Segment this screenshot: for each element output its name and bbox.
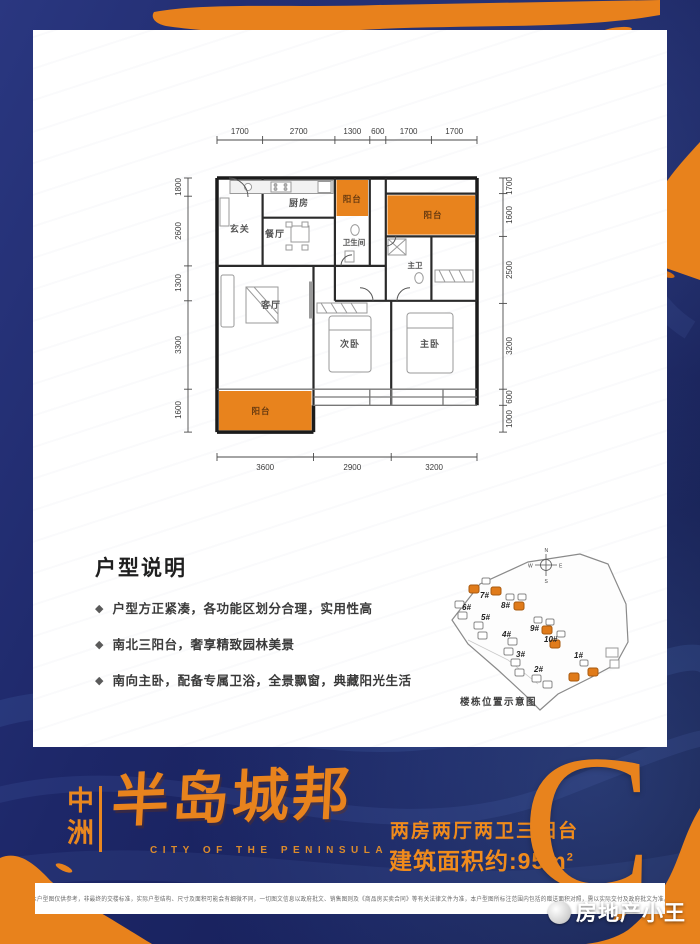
room-label-entry: 玄关 xyxy=(230,223,250,234)
unit-description: 户型说明 ◆ 户型方正紧凑，各功能区划分合理，实用性高 ◆ 南北三阳台，奢享精致… xyxy=(95,552,440,690)
floorplan-drawing: 1700 2700 1300 600 1700 1700 1800 2600 1… xyxy=(33,30,667,535)
dim-label: 1300 xyxy=(343,127,361,136)
watermark-avatar-icon xyxy=(548,901,571,924)
svg-text:N: N xyxy=(545,548,549,554)
bullet-text: 南向主卧，配备专属卫浴，全景飘窗，典藏阳光生活 xyxy=(112,673,411,689)
svg-text:5#: 5# xyxy=(481,613,490,622)
dim-label: 600 xyxy=(505,390,514,404)
svg-text:6#: 6# xyxy=(462,603,471,612)
dim-bottom-labels: 3600 2900 3200 xyxy=(256,463,443,472)
room-label-balcony-bottom: 阳台 xyxy=(251,406,270,416)
svg-text:7#: 7# xyxy=(480,591,489,600)
floorplan-card: 1700 2700 1300 600 1700 1700 1800 2600 1… xyxy=(33,30,667,747)
description-bullet: ◆ 南北三阳台，奢享精致园林美景 xyxy=(95,637,440,654)
svg-text:W: W xyxy=(528,564,533,570)
svg-text:1#: 1# xyxy=(574,651,583,660)
dim-label: 2900 xyxy=(343,463,361,472)
watermark: 房地产小王 xyxy=(548,897,686,927)
room-label-balcony-top: 阳台 xyxy=(343,194,362,204)
dim-label: 3300 xyxy=(174,336,183,354)
watermark-text: 房地产小王 xyxy=(576,897,686,927)
dim-label: 1600 xyxy=(505,206,514,224)
svg-text:9#: 9# xyxy=(530,624,539,633)
description-title: 户型说明 xyxy=(95,552,440,582)
dim-label: 1300 xyxy=(174,274,183,292)
room-label-master-bath: 主卫 xyxy=(408,260,423,270)
dim-label: 1700 xyxy=(400,127,418,136)
description-bullet: ◆ 户型方正紧凑，各功能区划分合理，实用性高 xyxy=(95,601,440,618)
door-arcs xyxy=(229,178,410,301)
dim-label: 1700 xyxy=(445,127,463,136)
dim-label: 1000 xyxy=(505,410,514,428)
svg-text:10#: 10# xyxy=(544,635,558,644)
room-label-living: 客厅 xyxy=(260,299,281,310)
dim-right-labels: 1700 1600 2500 3200 600 1000 xyxy=(505,177,514,428)
poster-root: 1700 2700 1300 600 1700 1700 1800 2600 1… xyxy=(0,0,700,944)
dim-label: 1600 xyxy=(174,401,183,419)
room-label-dining: 餐厅 xyxy=(264,228,285,239)
description-bullet: ◆ 南向主卧，配备专属卫浴，全景飘窗，典藏阳光生活 xyxy=(95,673,440,690)
dim-top-labels: 1700 2700 1300 600 1700 1700 xyxy=(231,127,464,136)
dim-label: 2500 xyxy=(505,261,514,279)
svg-text:8#: 8# xyxy=(501,601,510,610)
diamond-bullet-icon: ◆ xyxy=(95,637,103,654)
svg-text:4#: 4# xyxy=(501,630,511,639)
dim-label: 3200 xyxy=(425,463,443,472)
diamond-bullet-icon: ◆ xyxy=(95,601,103,618)
dim-label: 600 xyxy=(371,127,385,136)
room-label-kitchen: 厨房 xyxy=(289,197,309,208)
svg-text:3#: 3# xyxy=(516,650,525,659)
diamond-bullet-icon: ◆ xyxy=(95,673,103,690)
sitemap-caption: 楼栋位置示意图 xyxy=(460,696,537,708)
dim-label: 3200 xyxy=(505,337,514,355)
dim-label: 2700 xyxy=(290,127,308,136)
dim-label: 1800 xyxy=(174,178,183,196)
dim-left-labels: 1800 2600 1300 3300 1600 xyxy=(174,178,183,419)
dim-label: 1700 xyxy=(505,177,514,195)
dim-label: 3600 xyxy=(256,463,274,472)
dim-label: 2600 xyxy=(174,222,183,240)
sitemap: N E S W 6# 7# 8# xyxy=(438,542,640,717)
bullet-text: 南北三阳台，奢享精致园林美景 xyxy=(112,637,294,653)
svg-text:2#: 2# xyxy=(533,665,543,674)
room-label-balcony-right: 阳台 xyxy=(423,210,442,220)
room-label-bedroom2: 次卧 xyxy=(340,338,360,349)
site-block xyxy=(606,648,618,657)
bullet-text: 户型方正紧凑，各功能区划分合理，实用性高 xyxy=(112,601,372,617)
room-label-bath: 卫生间 xyxy=(343,237,366,247)
dim-label: 1700 xyxy=(231,127,249,136)
site-block xyxy=(610,660,619,668)
room-label-master: 主卧 xyxy=(420,338,440,349)
